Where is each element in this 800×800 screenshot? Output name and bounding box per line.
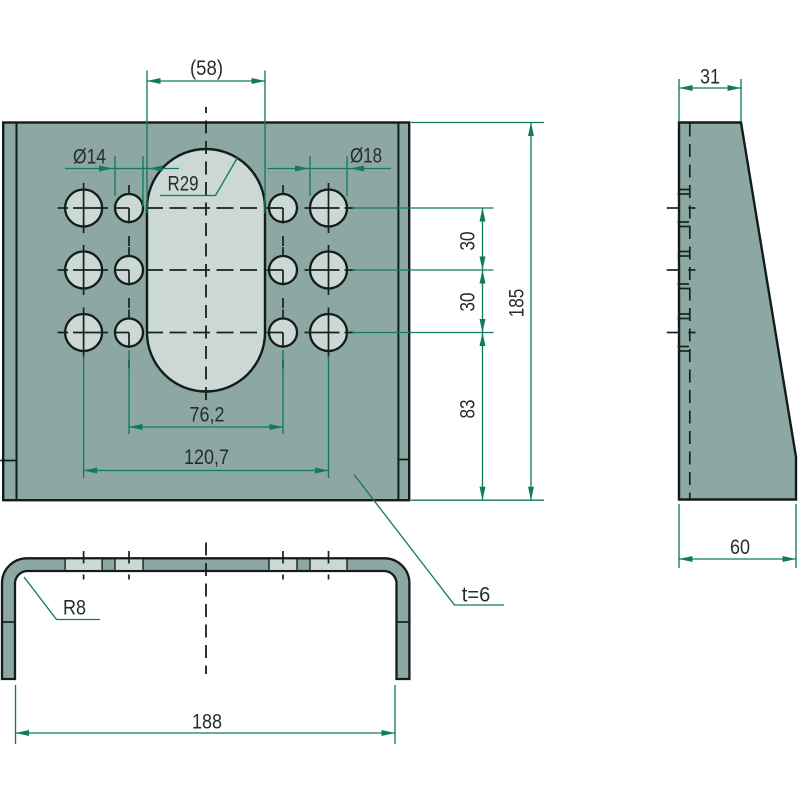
svg-text:t=6: t=6 <box>462 583 491 607</box>
svg-text:30: 30 <box>456 231 480 250</box>
svg-text:83: 83 <box>456 399 480 418</box>
svg-text:30: 30 <box>456 292 480 311</box>
svg-text:31: 31 <box>700 65 720 89</box>
svg-text:Ø18: Ø18 <box>350 144 382 168</box>
svg-text:R29: R29 <box>168 172 199 196</box>
svg-text:76,2: 76,2 <box>190 403 225 427</box>
svg-text:Ø14: Ø14 <box>73 145 106 169</box>
svg-text:60: 60 <box>730 535 750 559</box>
svg-text:185: 185 <box>505 289 529 318</box>
svg-text:(58): (58) <box>190 56 223 80</box>
svg-text:188: 188 <box>192 710 222 734</box>
svg-text:120,7: 120,7 <box>184 445 229 469</box>
svg-text:R8: R8 <box>63 596 86 620</box>
